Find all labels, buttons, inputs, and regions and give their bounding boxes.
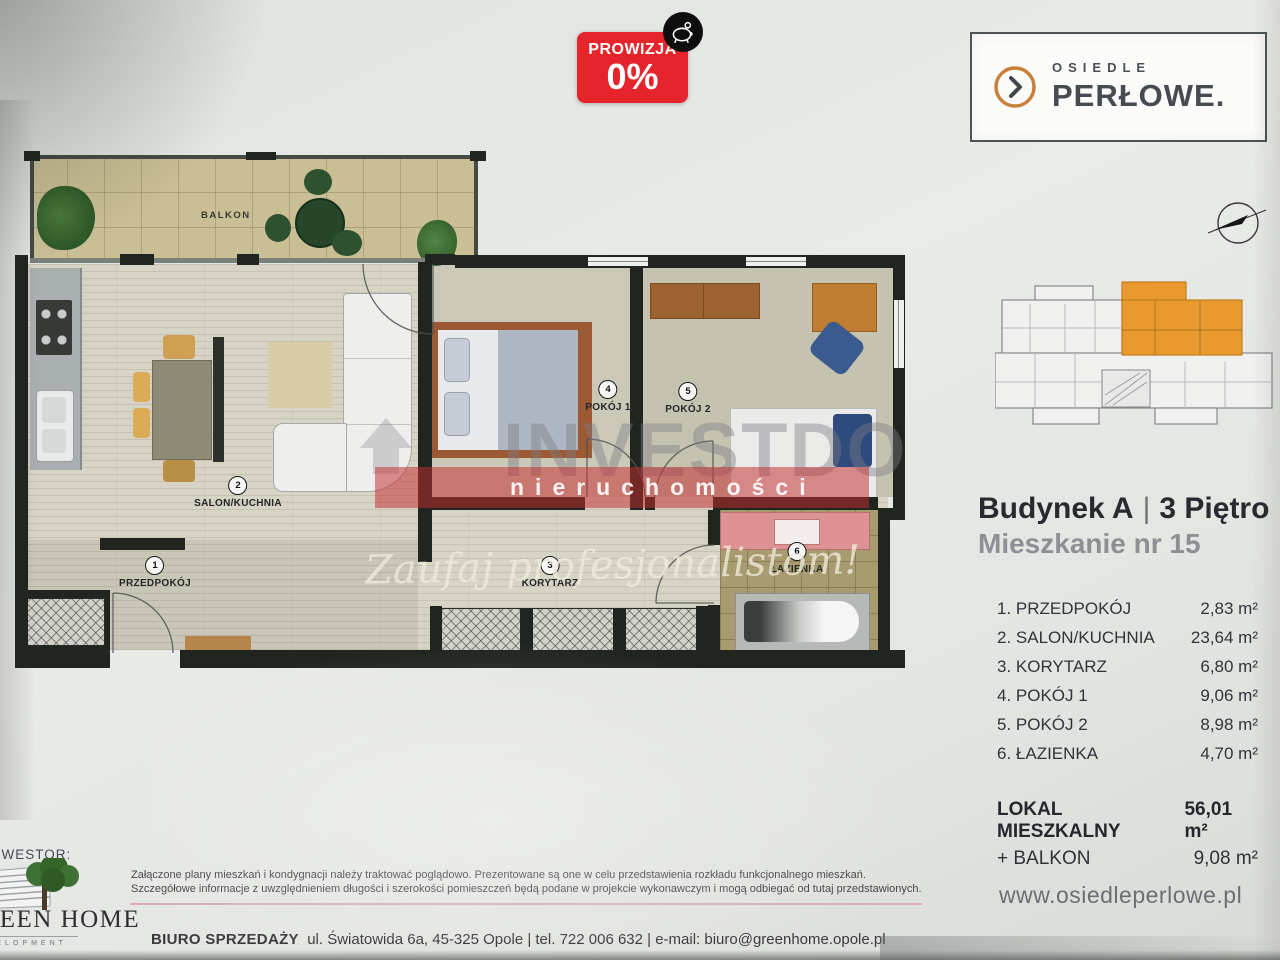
total-area: 56,01 m² bbox=[1184, 799, 1258, 843]
sales-office-line: BIURO SPRZEDAŻY ul. Światowida 6a, 45-32… bbox=[151, 931, 886, 948]
room-name: PRZEDPOKÓJ bbox=[119, 578, 191, 589]
room-area-row: 3. KORYTARZ 6,80 m² bbox=[997, 657, 1258, 677]
room-area: 6,80 m² bbox=[1200, 657, 1258, 677]
room-area: 4,70 m² bbox=[1200, 744, 1258, 764]
room-area: 9,06 m² bbox=[1200, 686, 1258, 706]
total-label: LOKAL MIESZKALNY bbox=[997, 799, 1184, 843]
room-area: 8,98 m² bbox=[1200, 715, 1258, 735]
room-number-badge: 1 bbox=[146, 556, 165, 575]
watermark-band: nieruchomości bbox=[375, 467, 869, 508]
watermark-house-icon bbox=[360, 418, 412, 448]
balcony-label: BALKON bbox=[201, 210, 251, 221]
total-area-block: LOKAL MIESZKALNY 56,01 m² + BALKON 9,08 … bbox=[997, 799, 1258, 870]
room-label: 6. ŁAZIENKA bbox=[997, 744, 1098, 764]
floor-plan: BALKON bbox=[15, 150, 910, 675]
total-row: + BALKON 9,08 m² bbox=[997, 848, 1258, 870]
room-label: 2. SALON/KUCHNIA bbox=[997, 628, 1155, 648]
watermark-subtitle: nieruchomości bbox=[375, 474, 817, 501]
room-name: SALON/KUCHNIA bbox=[194, 498, 282, 509]
plan-label-room2: 2 SALON/KUCHNIA bbox=[194, 476, 282, 509]
investor-name: GREEN HOME bbox=[0, 906, 140, 934]
building-name: Budynek A bbox=[978, 492, 1134, 525]
divider bbox=[130, 903, 922, 905]
room-label: 3. KORYTARZ bbox=[997, 657, 1107, 677]
total-label: + BALKON bbox=[997, 848, 1090, 870]
disclaimer-line: Załączone plany mieszkań i kondygnacji n… bbox=[131, 869, 922, 883]
room-area-row: 6. ŁAZIENKA 4,70 m² bbox=[997, 744, 1258, 764]
total-area: 9,08 m² bbox=[1194, 848, 1258, 870]
room-area-row: 1. PRZEDPOKÓJ 2,83 m² bbox=[997, 599, 1258, 619]
sales-office-label: BIURO SPRZEDAŻY bbox=[151, 931, 299, 948]
chevron-circle-icon bbox=[992, 64, 1038, 110]
room-area-list: 1. PRZEDPOKÓJ 2,83 m² 2. SALON/KUCHNIA 2… bbox=[997, 599, 1258, 764]
brand-logo: OSIEDLE PERŁOWE. bbox=[970, 32, 1267, 142]
compass-icon bbox=[1208, 196, 1266, 252]
unit-title: Budynek A|3 Piętro bbox=[978, 492, 1269, 526]
divider bbox=[0, 936, 78, 937]
room-label: 4. POKÓJ 1 bbox=[997, 686, 1088, 706]
room-area-row: 5. POKÓJ 2 8,98 m² bbox=[997, 715, 1258, 735]
room-number-badge: 4 bbox=[598, 380, 617, 399]
logo-line-name: PERŁOWE. bbox=[1052, 78, 1225, 114]
room-area: 23,64 m² bbox=[1191, 628, 1258, 648]
sales-office-info: ul. Światowida 6a, 45-325 Opole | tel. 7… bbox=[307, 931, 885, 948]
disclaimer-line: Szczegółowe informacje z uwzględnieniem … bbox=[131, 883, 922, 897]
website-url: www.osiedleperlowe.pl bbox=[999, 882, 1242, 909]
room-number-badge: 2 bbox=[228, 476, 247, 495]
commission-value: 0% bbox=[606, 59, 658, 95]
room-area-row: 4. POKÓJ 1 9,06 m² bbox=[997, 686, 1258, 706]
highlighted-unit bbox=[1122, 282, 1242, 355]
logo-line-top: OSIEDLE bbox=[1052, 60, 1225, 75]
room-number-badge: 5 bbox=[678, 382, 697, 401]
apartment-number: Mieszkanie nr 15 bbox=[978, 528, 1201, 560]
disclaimer: Załączone plany mieszkań i kondygnacji n… bbox=[131, 869, 922, 896]
investor-subtitle: DEVELOPMENT bbox=[0, 940, 67, 947]
photo-edge bbox=[0, 950, 1280, 960]
room-label: 5. POKÓJ 2 bbox=[997, 715, 1088, 735]
room-area-row: 2. SALON/KUCHNIA 23,64 m² bbox=[997, 628, 1258, 648]
piggy-bank-icon bbox=[663, 12, 703, 52]
plan-label-room1: 1 PRZEDPOKÓJ bbox=[119, 556, 191, 589]
room-area: 2,83 m² bbox=[1200, 599, 1258, 619]
building-keyplan bbox=[995, 270, 1273, 428]
room-label: 1. PRZEDPOKÓJ bbox=[997, 599, 1131, 619]
title-divider: | bbox=[1134, 492, 1160, 525]
floor-name: 3 Piętro bbox=[1159, 492, 1269, 525]
total-row: LOKAL MIESZKALNY 56,01 m² bbox=[997, 799, 1258, 843]
photo-edge bbox=[880, 936, 1280, 960]
flyer-photo: PROWIZJA 0% OSIEDLE PERŁOWE. BALKO bbox=[0, 0, 1280, 960]
